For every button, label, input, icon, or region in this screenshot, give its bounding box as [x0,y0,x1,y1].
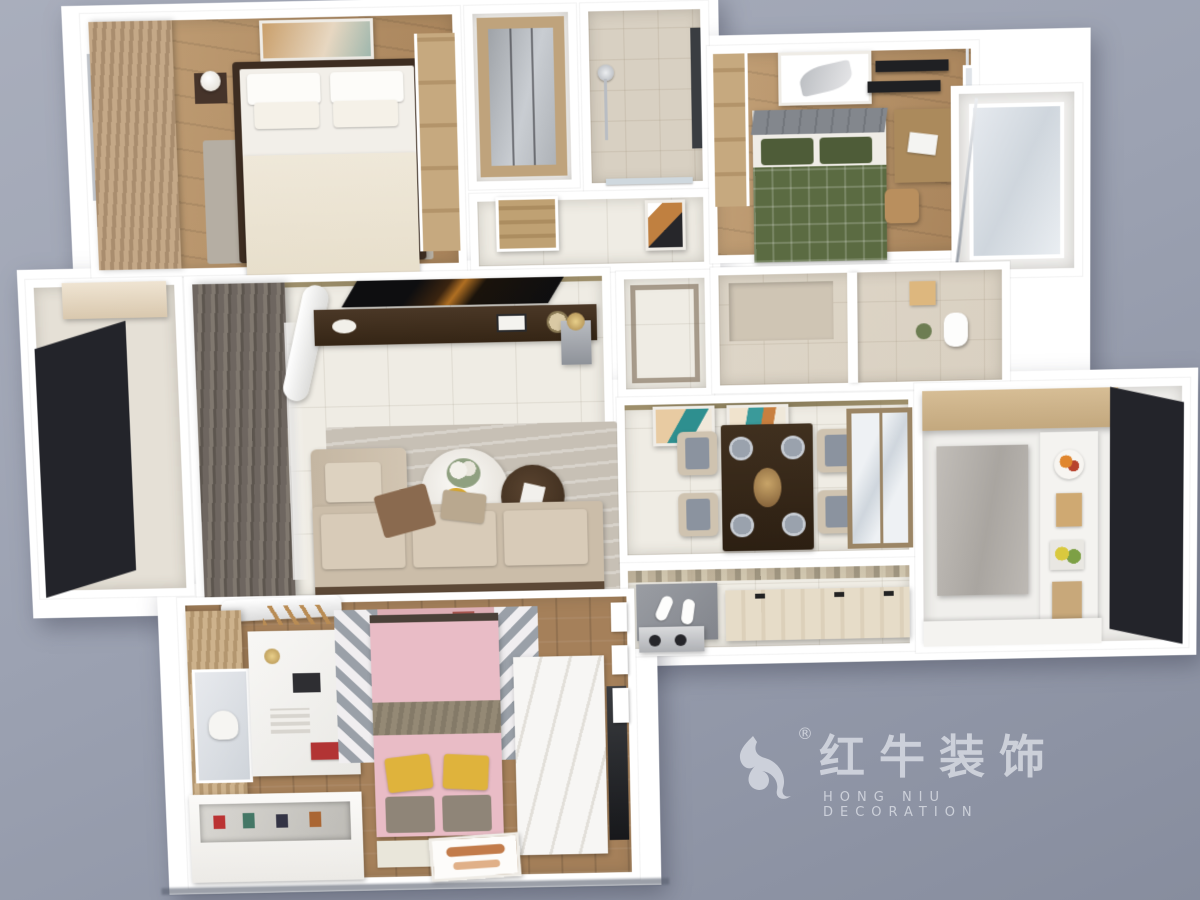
stationery [270,708,310,734]
desk-chair [885,188,920,223]
bed-frame-bar [370,613,499,623]
living-room [184,268,617,608]
burner [649,635,661,647]
laptop [907,132,938,156]
bed-master [232,58,426,263]
counter [1040,431,1098,629]
wall-shelves [611,602,631,728]
glass-door [606,177,693,185]
dining-chair [677,431,718,475]
wood-door [495,196,559,252]
knob [884,591,894,596]
wardrobe-door-line [509,29,514,166]
gray-fold [372,700,501,735]
mirror-wardrobe [477,16,568,177]
curtains-dark [192,283,295,600]
hongniu-logo-icon [735,732,807,810]
paper-bag [1056,493,1082,527]
yellow-pillow [443,754,490,791]
plant [916,323,932,339]
shower-pipe [604,79,608,140]
upper-cabinets [922,387,1118,431]
desk-lamp [264,648,280,664]
registered-mark: ® [797,724,813,743]
entry [620,557,918,657]
brand-name-cn: 红牛装饰 [819,734,1059,780]
window-nook [951,83,1083,278]
bed-pink [370,619,504,838]
headboard [751,108,888,135]
left-balcony [25,277,194,599]
shelf-box [612,645,628,674]
feather-artwork [778,51,872,106]
seat-cushion [503,509,588,566]
glass [969,102,1064,260]
media-console [314,304,598,346]
artwork [259,18,374,61]
corridor [616,270,714,398]
curtains-tan [88,20,181,270]
dining-room [616,391,917,563]
red-books [311,742,341,760]
wall-shelf [875,59,948,72]
vanity-recess [729,281,834,341]
gold-ornament [567,312,585,330]
sofa-pillow [325,462,382,503]
wardrobe-door-line [531,28,536,165]
second-bedroom [707,40,980,263]
mosaic-trim [628,565,910,583]
gray-pillow [442,795,492,832]
sofa-pillow [440,489,487,523]
feather [797,59,854,97]
pillow [330,71,404,103]
pillow [254,101,320,129]
shoe-bench [725,587,910,641]
decor-dish [332,319,357,334]
cooktop-unit [639,626,705,653]
chair-cushion [686,499,710,531]
brush-stroke [446,844,505,858]
collectible [243,813,255,829]
display-window [199,801,351,842]
slipper [654,594,675,622]
fruit-plate [1054,449,1084,479]
decor-books [496,314,527,333]
chair-cushion [685,437,709,469]
slipper [681,598,696,625]
floor-artwork [428,832,521,882]
wardrobe [713,53,750,207]
chair-white [208,710,239,740]
dining-table [721,423,814,551]
chair-cushion [825,496,849,528]
bathroom [710,261,1010,393]
green-pillow [761,138,814,166]
centerpiece [753,467,781,507]
marble-border [630,284,700,383]
brand-name-en: HONG NIU DECORATION [823,790,1075,820]
plate [729,436,753,460]
bottom-counter [924,618,1102,647]
gold-ornament-stand [561,320,592,365]
toilet [944,312,968,347]
plate [781,435,805,459]
burner [675,634,687,646]
mirror-panel [690,28,702,149]
knob [755,594,765,599]
notebook [292,673,320,693]
pillow [333,100,399,128]
shower-room [580,1,711,192]
balcony-cabinet [62,281,168,319]
tv [342,277,564,308]
plaid-duvet [753,165,887,263]
shelf-box [611,602,627,632]
storage-box [909,281,935,306]
hallway [469,189,712,275]
brand-watermark: ® 红牛装饰 HONG NIU DECORATION [735,718,1075,828]
wardrobe [414,33,461,252]
shelf-box [612,688,628,723]
knob [834,592,844,597]
groceries [1050,540,1084,570]
plate [782,512,806,536]
cutting-board [1052,581,1082,621]
wall-shelf [868,80,941,93]
collectible [309,812,321,828]
glass-sliding-door [846,407,913,548]
tall-marble-cabinet [936,445,1028,596]
scene-background: ® 红牛装饰 HONG NIU DECORATION [0,0,1200,900]
white-platform [513,655,608,855]
bed-green [752,108,887,263]
kitchen-windows [1109,387,1183,644]
collectible [276,814,288,828]
balcony-windows [35,321,137,598]
partition-wall [847,273,858,383]
collectible [213,815,225,829]
chair-cushion [825,434,849,466]
kids-bedroom [177,588,640,888]
abstract-artwork [645,199,686,250]
window-seat [192,668,253,783]
dining-chair [678,492,718,536]
desk [894,108,951,182]
yellow-pillow [384,753,433,793]
kitchen [914,378,1190,653]
display-cabinet [189,792,364,883]
walk-in-closet [464,3,580,189]
sofa [312,501,604,601]
master-bedroom [80,6,467,279]
brush-stroke [453,859,500,870]
flowers [446,458,481,488]
plate [730,513,754,537]
pillow [247,73,321,105]
gray-pillow [385,796,435,833]
door-divider [879,413,883,543]
wood-hangers [262,604,332,625]
green-pillow [819,137,872,165]
